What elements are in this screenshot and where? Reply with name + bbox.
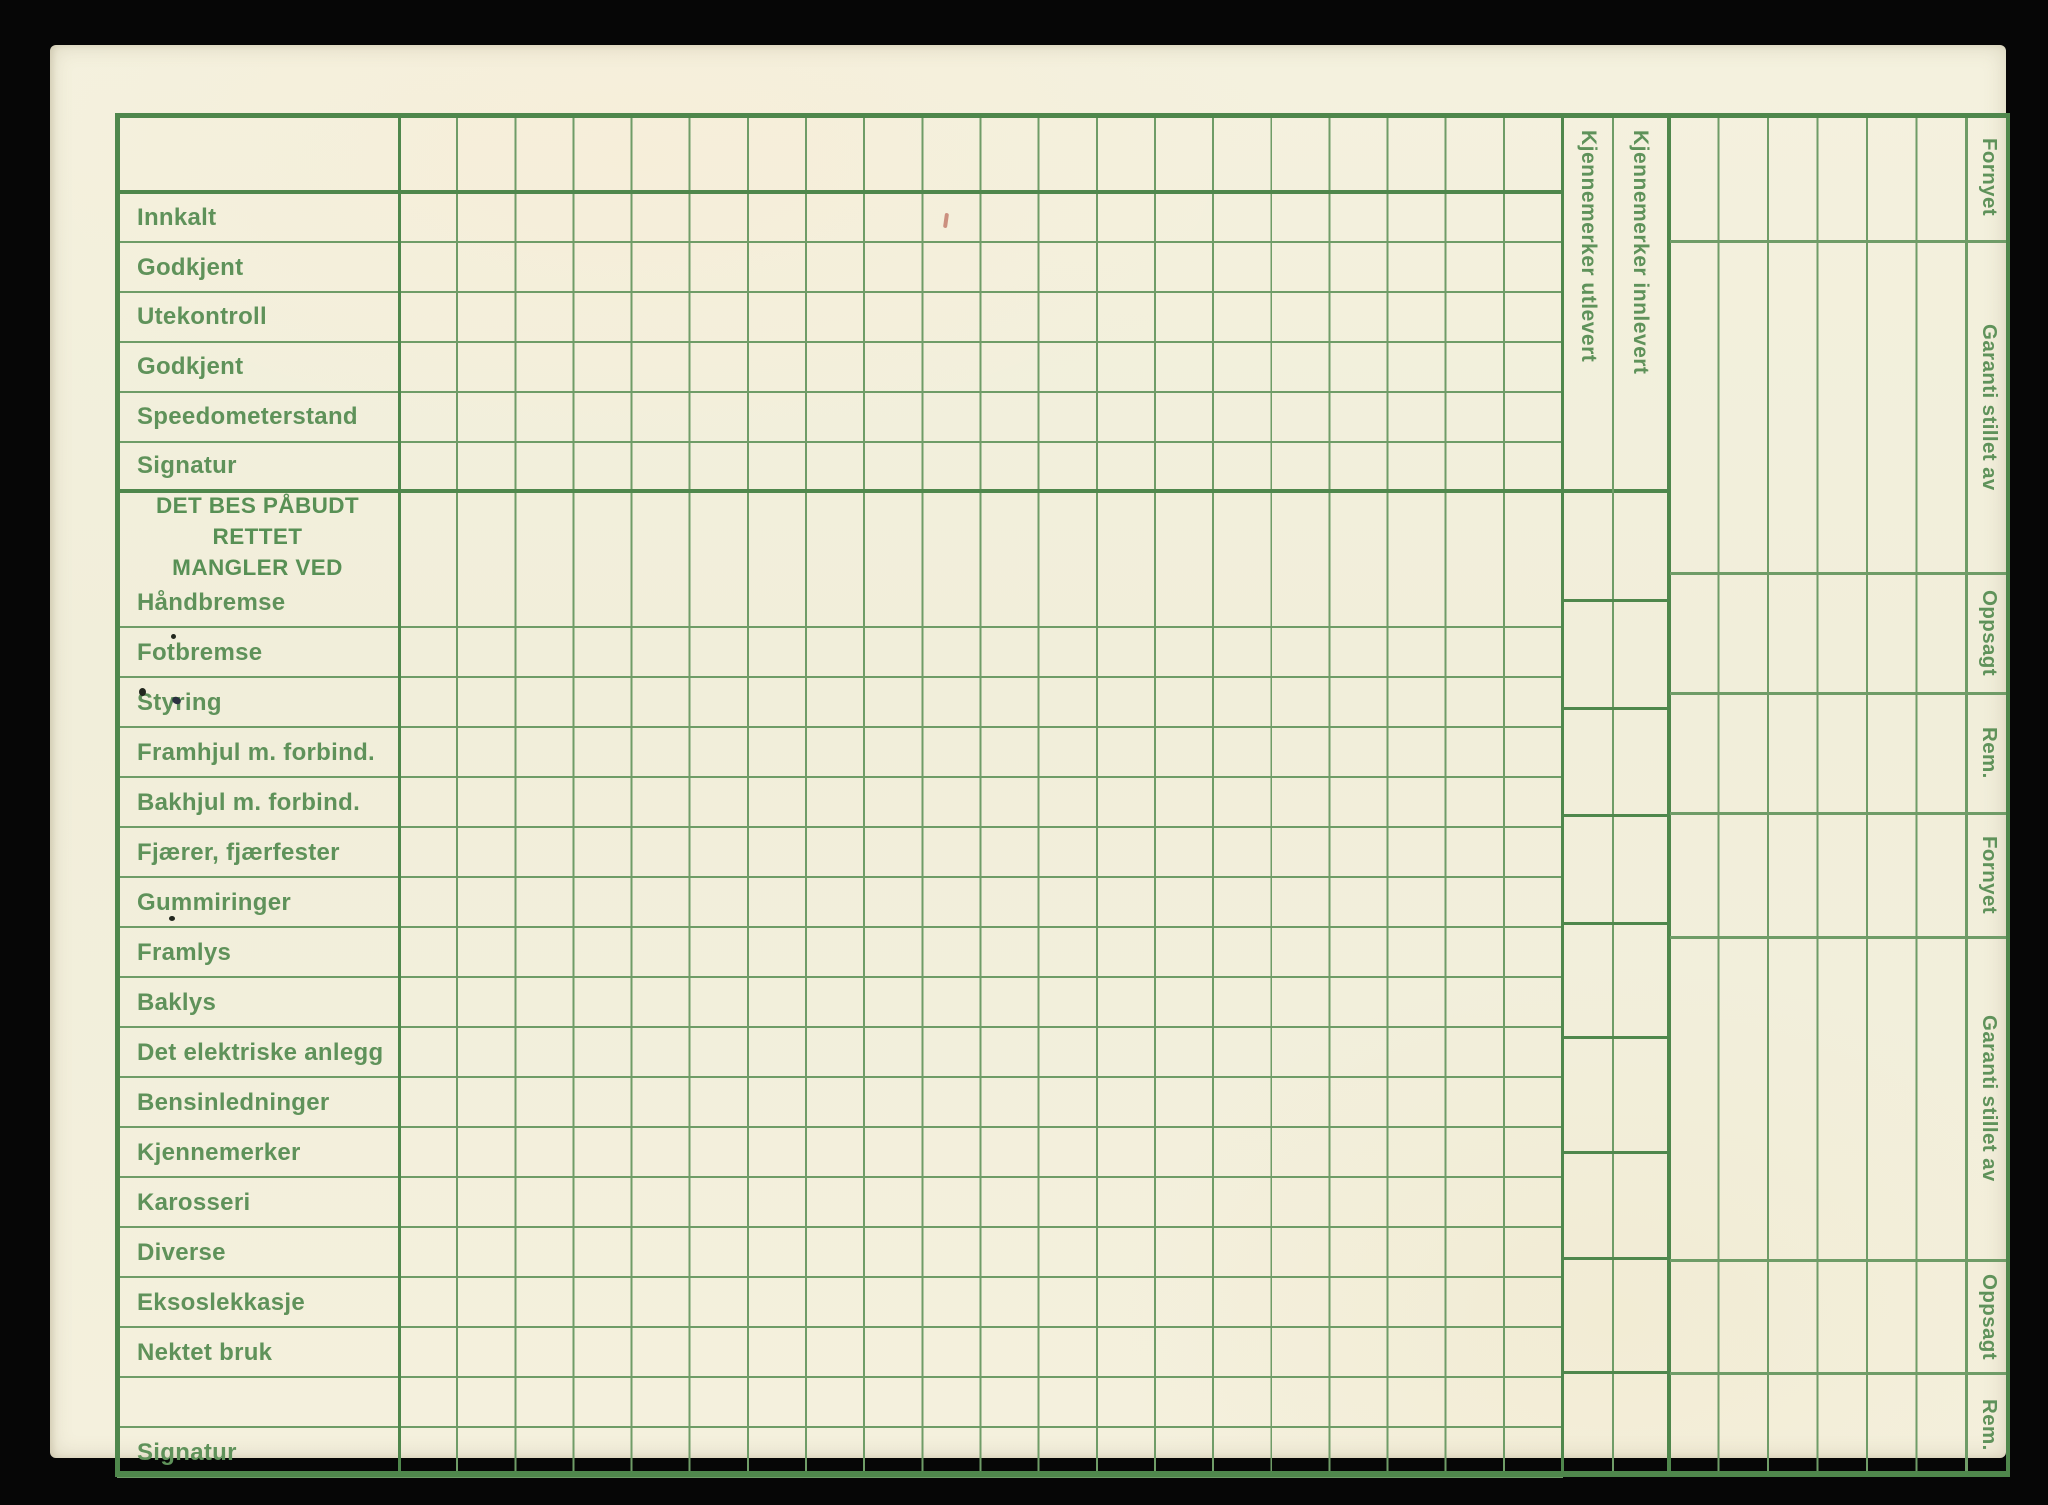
- row-label: Det elektriske anlegg: [117, 1028, 398, 1078]
- ink-speck: [171, 634, 176, 639]
- right-section-label: Rem.: [1968, 1373, 2010, 1477]
- row-label: Godkjent: [117, 243, 398, 293]
- right-section-label: Garanti stillet av: [1968, 241, 2010, 573]
- row-label: Diverse: [117, 1228, 398, 1278]
- row-label: Utekontroll: [117, 292, 398, 342]
- row-label: Fjærer, fjærfester: [117, 828, 398, 878]
- defects-header-line1: DET BES PÅBUDT RETTET: [115, 490, 400, 552]
- card-paper: InnkaltGodkjentUtekontrollGodkjentSpeedo…: [50, 45, 2006, 1458]
- row-label: Bakhjul m. forbind.: [117, 778, 398, 828]
- plate-column-header-utlevert: Kjennemerker utlevert: [1564, 115, 1612, 510]
- right-section-label: Oppsagt: [1968, 1260, 2010, 1373]
- row-label: [117, 1378, 398, 1428]
- ink-speck: [139, 688, 146, 696]
- ink-speck: [169, 916, 175, 921]
- row-label: Fotbremse: [117, 628, 398, 678]
- row-label: Signatur: [117, 1428, 398, 1477]
- row-label: Eksoslekkasje: [117, 1278, 398, 1328]
- card-frame: [115, 113, 2010, 1477]
- row-label: Godkjent: [117, 342, 398, 392]
- right-section-label: Garanti stillet av: [1968, 937, 2010, 1260]
- row-label: Styring: [117, 678, 398, 728]
- plate-column-header-innlevert: Kjennemerker innlevert: [1614, 115, 1667, 510]
- row-label: Bensinledninger: [117, 1078, 398, 1128]
- right-section-label: Oppsagt: [1968, 573, 2010, 693]
- row-label: Kjennemerker: [117, 1128, 398, 1178]
- scan-background: InnkaltGodkjentUtekontrollGodkjentSpeedo…: [0, 0, 2048, 1505]
- row-label: Gummiringer: [117, 878, 398, 928]
- row-label: Karosseri: [117, 1178, 398, 1228]
- row-label: Nektet bruk: [117, 1328, 398, 1378]
- row-label: Framhjul m. forbind.: [117, 728, 398, 778]
- row-label: Håndbremse: [117, 578, 398, 628]
- row-label: Baklys: [117, 978, 398, 1028]
- row-label: Signatur: [117, 442, 398, 492]
- right-section-label: Rem.: [1968, 693, 2010, 813]
- row-label: Speedometerstand: [117, 392, 398, 442]
- row-label: Innkalt: [117, 193, 398, 243]
- defects-section-header: DET BES PÅBUDT RETTET MANGLER VED: [115, 495, 400, 578]
- row-label: Framlys: [117, 928, 398, 978]
- right-section-label: Fornyet: [1968, 113, 2010, 241]
- right-section-label: Fornyet: [1968, 813, 2010, 937]
